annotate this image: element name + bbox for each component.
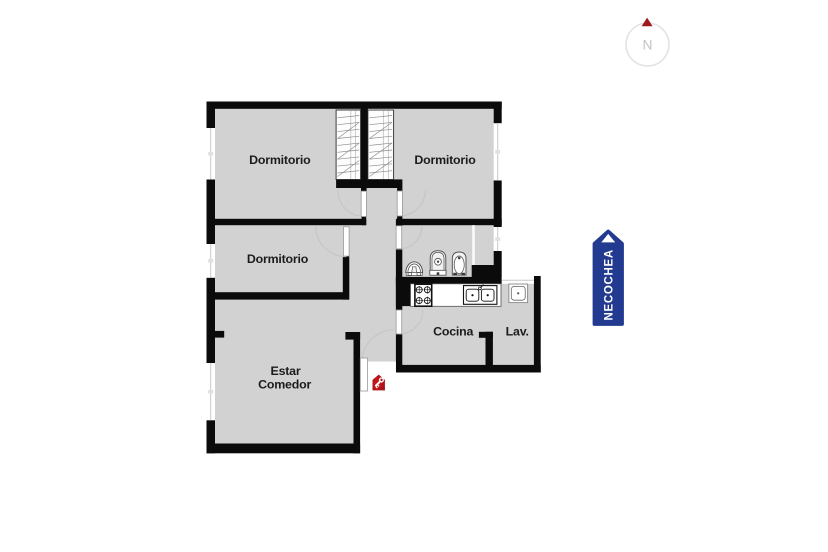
svg-text:Dormitorio: Dormitorio xyxy=(247,252,309,266)
svg-text:Cocina: Cocina xyxy=(433,325,473,339)
svg-text:NECOCHEA: NECOCHEA xyxy=(604,249,616,320)
svg-text:Lav.: Lav. xyxy=(506,324,529,338)
svg-text:Dormitorio: Dormitorio xyxy=(249,153,311,167)
svg-text:Estar: Estar xyxy=(271,364,301,378)
svg-text:N: N xyxy=(643,37,653,52)
svg-text:Dormitorio: Dormitorio xyxy=(414,153,476,167)
svg-text:Comedor: Comedor xyxy=(258,378,311,392)
